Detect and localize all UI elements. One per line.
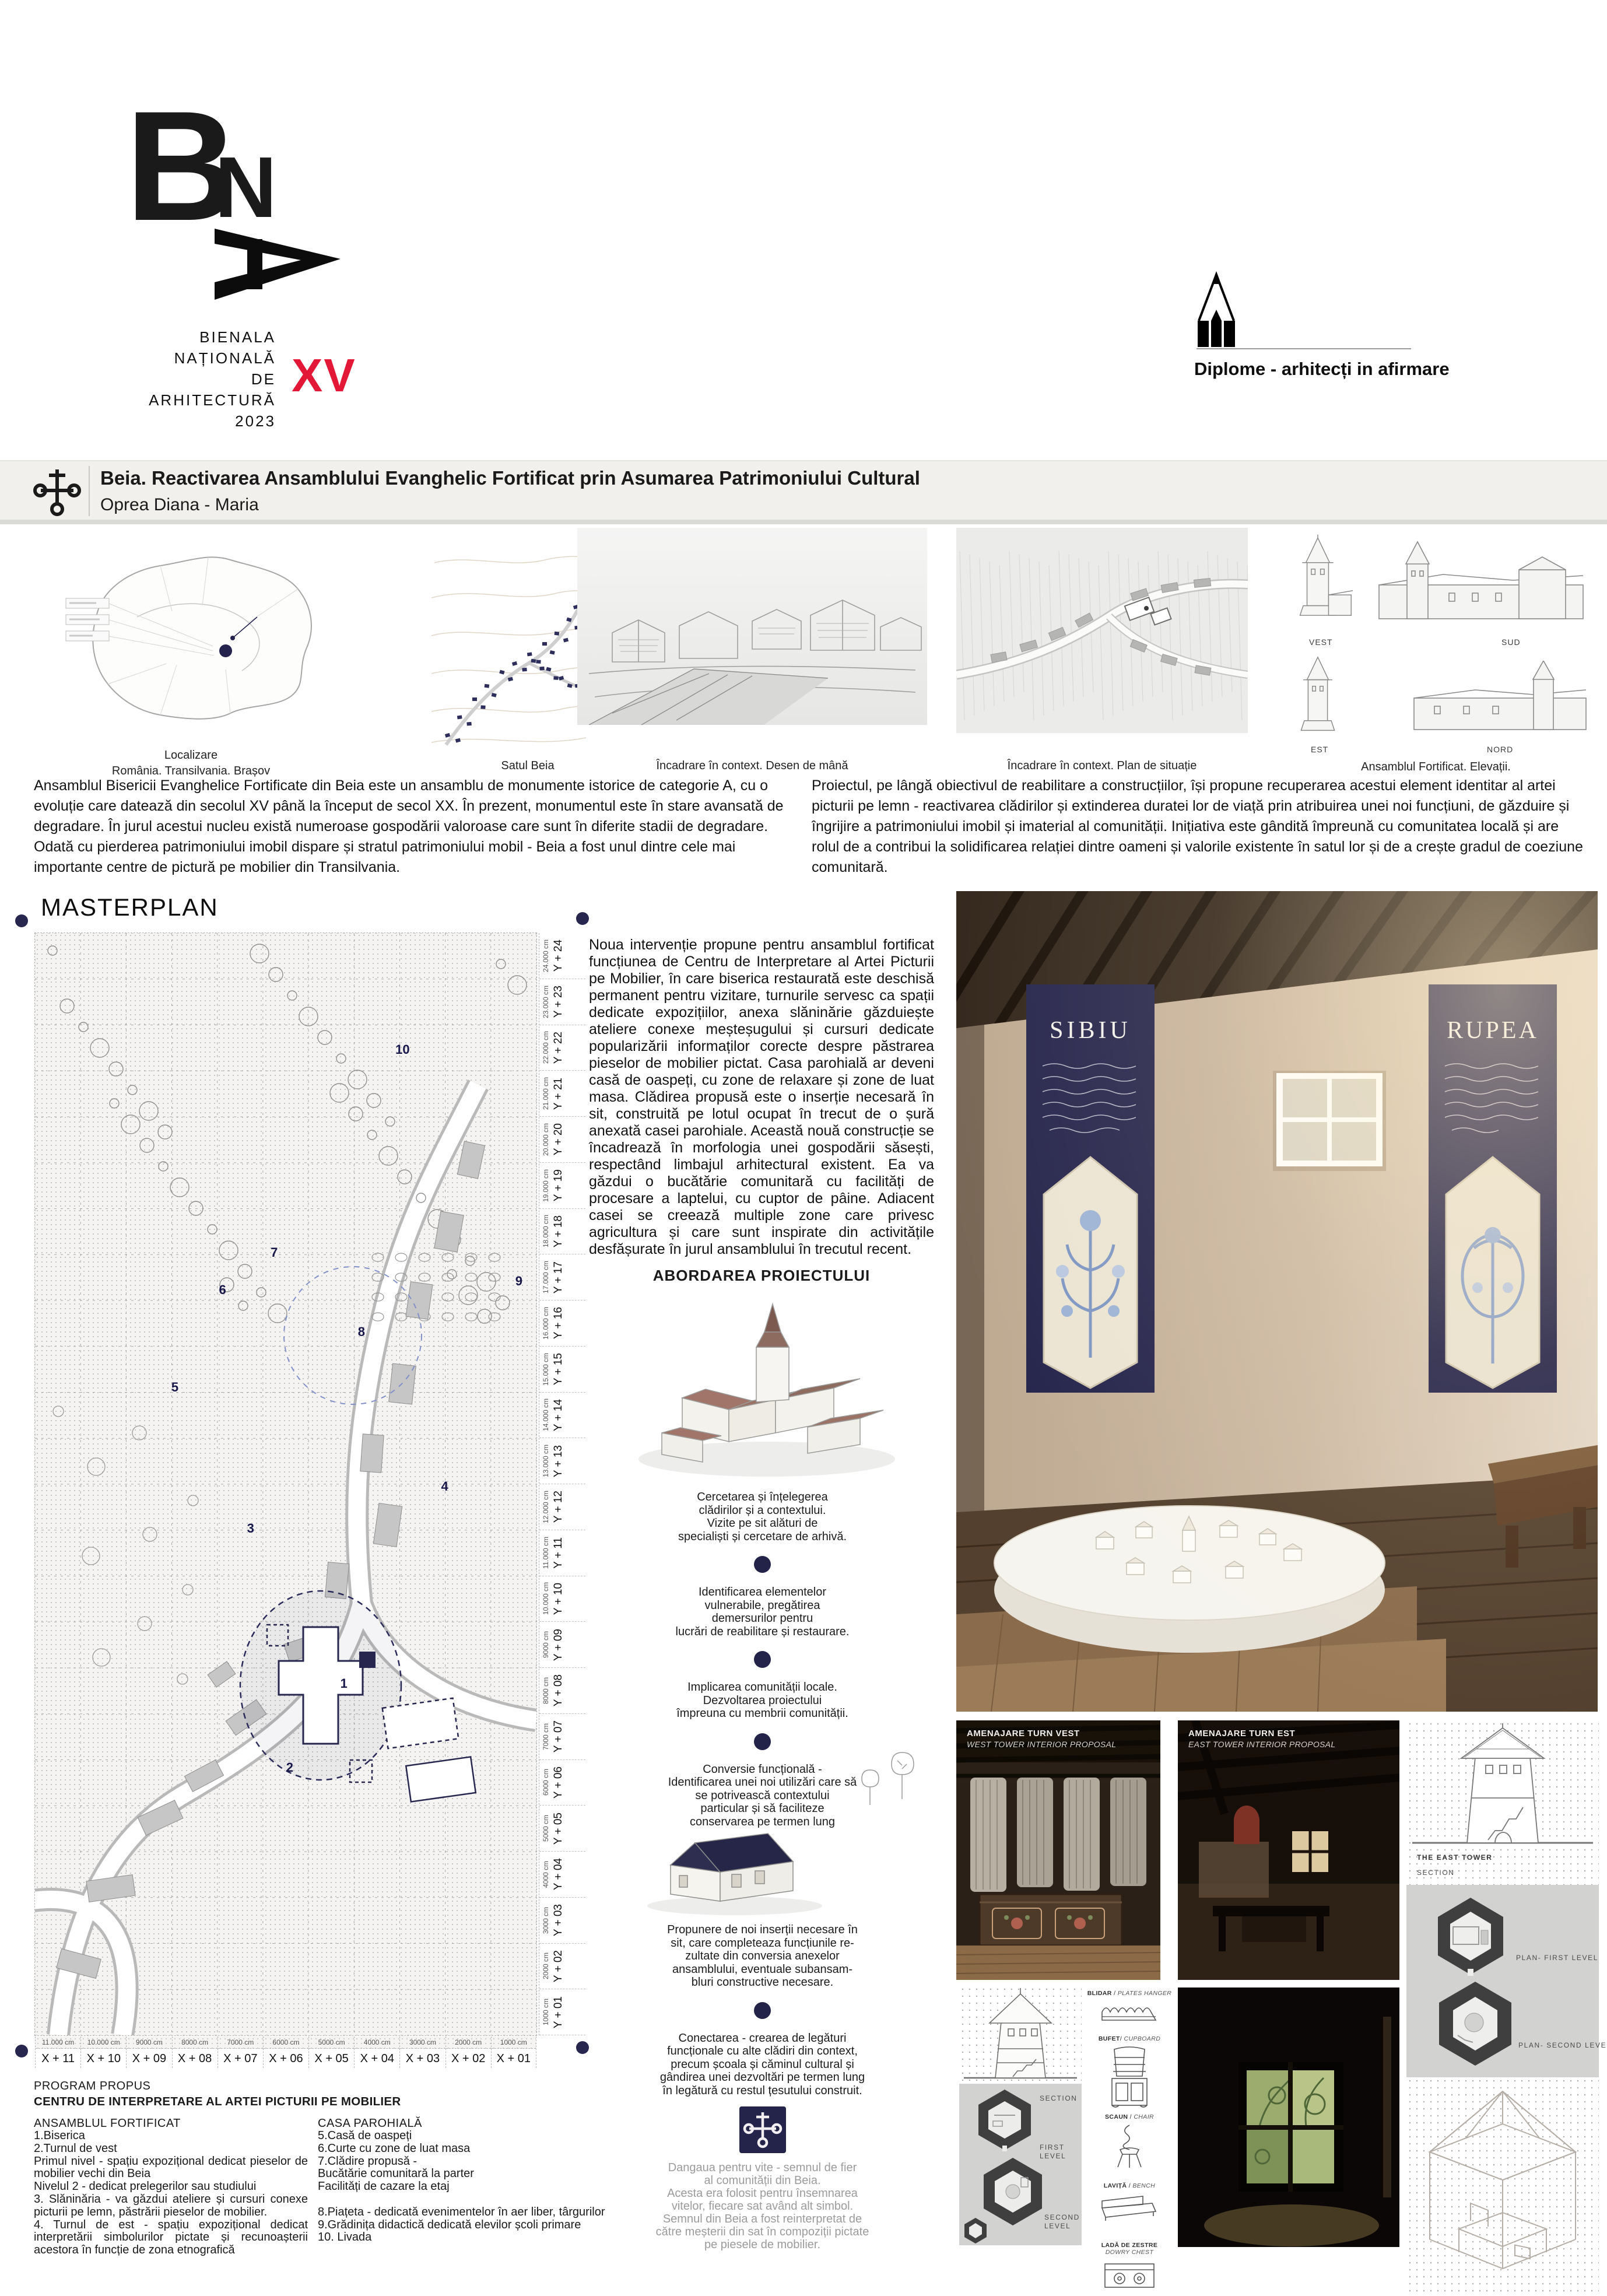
program-column-fortificat: ANSAMBLUL FORTIFICAT 1.Biserica2.Turnul … (34, 2117, 308, 2257)
masterplan-drawing: 12345678910 (35, 933, 536, 2035)
elevation-label-sud: SUD (1501, 637, 1521, 647)
east-plan2-label: PLAN- SECOND LEVEL (1518, 2041, 1607, 2049)
y-grid-cell: 8000 cmY + 08 (539, 1668, 585, 1714)
process-dot-icon (754, 1651, 771, 1668)
program-item: Nivelul 2 - dedicat prelegerilor sau stu… (34, 2181, 308, 2193)
approach-heading: ABORDAREA PROIECTULUI (589, 1267, 934, 1285)
x-grid-cell: 7000 cmX + 07 (217, 2036, 263, 2068)
program-item: 1.Biserica (34, 2130, 308, 2143)
elevation-nord-drawing (1411, 661, 1589, 742)
pencil-icon (1194, 265, 1238, 347)
y-grid-cell: 16.000 cmY + 16 (539, 1301, 585, 1347)
x-grid-cell: 9000 cmX + 09 (126, 2036, 171, 2068)
plan-marker-4: 4 (441, 1479, 448, 1494)
plan-marker-10: 10 (395, 1042, 409, 1057)
photo-label-vest: AMENAJARE TURN VEST WEST TOWER INTERIOR … (967, 1729, 1116, 1750)
process-dot-icon (754, 2002, 771, 2019)
elevation-label-vest: VEST (1309, 637, 1333, 647)
page-author: Oprea Diana - Maria (100, 495, 259, 515)
furniture-column: BLIDAR / PLATES HANGER BUFET/ CUPBOARD S… (1086, 1990, 1173, 2281)
east-plan1-label: PLAN- FIRST LEVEL (1516, 1954, 1598, 1962)
map-caption-elevatii: Ansamblul Fortificat. Elevații. (1277, 759, 1595, 775)
axonometric-proposed-house (638, 1801, 831, 1918)
plan-marker-3: 3 (247, 1521, 254, 1536)
photo-turn-vest: AMENAJARE TURN VEST WEST TOWER INTERIOR … (956, 1720, 1160, 1980)
west-first-level-label: FIRST LEVEL (1040, 2143, 1077, 2161)
intro-paragraph-right: Proiectul, pe lângă obiectivul de reabil… (812, 776, 1587, 878)
intro-paragraph-left: Ansamblul Bisericii Evanghelice Fortific… (34, 776, 786, 878)
plan-marker-9: 9 (515, 1274, 522, 1289)
y-grid-cell: 1000 cmY + 01 (539, 1989, 585, 2035)
program-col1-title: ANSAMBLUL FORTIFICAT (34, 2117, 308, 2130)
process-steps-5-6: Propunere de noi inserții necesare în si… (603, 1923, 921, 2097)
program-item: Facilități de cazare la etaj (318, 2181, 612, 2193)
y-grid-cell: 24.000 cmY + 24 (539, 933, 585, 979)
program-item: 6.Curte cu zone de luat masa (318, 2143, 612, 2155)
grid-dot-icon (576, 2041, 589, 2054)
map-localizare (55, 530, 327, 737)
program-item: 5.Casă de oaspeți (318, 2130, 612, 2143)
page-title: Beia. Reactivarea Ansamblului Evanghelic… (100, 467, 920, 489)
grid-dot-icon (576, 912, 589, 925)
y-grid-cell: 13.000 cmY + 13 (539, 1438, 585, 1484)
y-grid-cell: 15.000 cmY + 15 (539, 1347, 585, 1393)
title-bar: Beia. Reactivarea Ansamblului Evanghelic… (0, 460, 1607, 524)
west-tower-section-panel (959, 1986, 1082, 2084)
y-grid-cell: 20.000 cmY + 20 (539, 1117, 585, 1163)
y-grid-cell: 18.000 cmY + 18 (539, 1209, 585, 1255)
x-grid-cell: 11.000 cmX + 11 (35, 2036, 80, 2068)
y-grid-cell: 19.000 cmY + 19 (539, 1163, 585, 1209)
process-step-6: Conectarea - crearea de legături funcțio… (660, 2032, 865, 2098)
logo-text-line: ARHITECTURĂ (114, 390, 276, 411)
east-tower-name: THE EAST TOWER (1417, 1853, 1493, 1862)
y-grid-cell: 4000 cmY + 04 (539, 1852, 585, 1898)
program-item: 7.Clădire propusă - (318, 2155, 612, 2168)
process-step-2: Identificarea elementelor vulnerabile, p… (676, 1586, 850, 1638)
y-grid-cell: 3000 cmY + 03 (539, 1898, 585, 1944)
award-label: Diplome - arhitecți in afirmare (1194, 359, 1450, 380)
logo-text-line: NAȚIONALĂ (114, 348, 276, 369)
masterplan-x-axis: 11.000 cmX + 1110.000 cmX + 109000 cmX +… (35, 2036, 536, 2068)
map-caption-situatie: Încadrare în context. Plan de situație (956, 758, 1248, 774)
program-item (318, 2193, 612, 2206)
cattle-brand-badge (739, 2106, 786, 2153)
plan-marker-6: 6 (219, 1282, 226, 1298)
bufet-drawing (1106, 2045, 1153, 2110)
y-grid-cell: 5000 cmY + 05 (539, 1806, 585, 1852)
lavita-drawing (1097, 2192, 1162, 2222)
plan-marker-7: 7 (271, 1245, 278, 1260)
west-second-level-label: SECOND LEVEL (1044, 2213, 1082, 2231)
y-grid-cell: 21.000 cmY + 21 (539, 1071, 585, 1117)
logo-edition: XV (292, 349, 356, 402)
logo-letter-a-icon (213, 226, 345, 302)
scaun-drawing (1112, 2123, 1147, 2169)
x-grid-cell: 3000 cmX + 03 (399, 2036, 445, 2068)
program-item: 2.Turnul de vest (34, 2143, 308, 2155)
program-item: 4. Turnul de est - spațiu expozițional d… (34, 2219, 308, 2257)
program-item: 3. Slăninăria - va găzdui ateliere și cu… (34, 2193, 308, 2219)
brand-caption: Dangaua pentru vite - semnul de fier al … (603, 2161, 921, 2251)
east-tower-column: THE EAST TOWER SECTION PLAN- FIRST LEVEL… (1406, 1720, 1599, 2295)
masterplan-markers: 12345678910 (35, 933, 536, 2035)
program-heading: CENTRU DE INTERPRETARE AL ARTEI PICTURII… (34, 2095, 401, 2109)
x-grid-cell: 2000 cmX + 02 (445, 2036, 491, 2068)
y-grid-cell: 12.000 cmY + 12 (539, 1484, 585, 1530)
y-grid-cell: 11.000 cmY + 11 (539, 1530, 585, 1576)
elevation-label-nord: NORD (1487, 745, 1513, 754)
y-grid-cell: 9000 cmY + 09 (539, 1622, 585, 1668)
y-grid-cell: 7000 cmY + 07 (539, 1714, 585, 1760)
masterplan-description: Noua intervenție propune pentru ansamblu… (589, 937, 934, 1258)
east-tower-section-drawing (1406, 1723, 1599, 1849)
west-section-label: SECTION (1040, 2094, 1078, 2102)
process-dot-icon (754, 1733, 771, 1750)
program-item: Bucătărie comunitară la parter (318, 2168, 612, 2181)
program-label: PROGRAM PROPUS (34, 2080, 150, 2093)
x-grid-cell: 5000 cmX + 05 (308, 2036, 354, 2068)
x-grid-cell: 1000 cmX + 01 (491, 2036, 536, 2068)
y-grid-cell: 14.000 cmY + 14 (539, 1393, 585, 1439)
logo-text-line: 2023 (114, 411, 276, 432)
elevation-sud-drawing (1373, 539, 1589, 632)
plan-marker-1: 1 (341, 1676, 348, 1691)
logo-text-line: BIENALA (114, 327, 276, 348)
plan-marker-8: 8 (358, 1324, 365, 1340)
photo-label-est: AMENAJARE TURN EST EAST TOWER INTERIOR P… (1188, 1729, 1335, 1750)
masterplan-y-axis: 24.000 cmY + 2423.000 cmY + 2322.000 cmY… (539, 933, 585, 2035)
map-caption-localizare: Localizare România. Transilvania. Brașov (55, 748, 327, 779)
process-step-3: Implicarea comunității locale. Dezvoltar… (676, 1681, 848, 1720)
plan-marker-5: 5 (171, 1380, 178, 1395)
lada-drawing (1100, 2258, 1159, 2293)
title-divider (89, 466, 90, 516)
trees-doodle-icon (847, 1735, 922, 1811)
program-item: 8.Piațeta - dedicată evenimentelor în ae… (318, 2206, 612, 2219)
logo-text-line: DE (114, 369, 276, 390)
process-dot-icon (754, 1556, 771, 1573)
y-grid-cell: 10.000 cmY + 10 (539, 1576, 585, 1622)
award-divider (1197, 348, 1411, 349)
photo-turn-est: AMENAJARE TURN EST EAST TOWER INTERIOR P… (1178, 1720, 1399, 1980)
award-block: Diplome - arhitecți in afirmare (1194, 265, 1567, 347)
y-grid-cell: 6000 cmY + 06 (539, 1760, 585, 1806)
program-col2-title: CASA PAROHIALĂ (318, 2117, 612, 2130)
y-grid-cell: 2000 cmY + 02 (539, 1944, 585, 1990)
map-caption-desen: Încadrare în context. Desen de mână (577, 758, 927, 774)
logo-letter-n: N (215, 145, 277, 231)
grid-dot-icon (15, 914, 28, 927)
process-step-1: Cercetarea și înțelegerea clădirilor și … (678, 1491, 847, 1543)
elevation-vest-drawing (1283, 531, 1353, 633)
blidar-drawing (1097, 1999, 1162, 2024)
program-item: 9.Grădinița didactică dedicată elevilor … (318, 2219, 612, 2232)
west-tower-plans-panel: SECTION FIRST LEVEL SECOND LEVEL (959, 2084, 1082, 2245)
program-item: 10. Livada (318, 2231, 612, 2244)
map-plan-situatie (956, 528, 1248, 733)
plan-marker-2: 2 (286, 1760, 293, 1775)
map-elevatii: VEST SUD EST NORD (1277, 528, 1595, 761)
elevation-label-est: EST (1311, 745, 1328, 754)
x-grid-cell: 4000 cmX + 04 (354, 2036, 399, 2068)
program-item: Primul nivel - spațiu expozițional dedic… (34, 2155, 308, 2181)
photo-window-tree (1178, 1987, 1399, 2247)
masterplan-title: MASTERPLAN (41, 893, 219, 921)
axonometric-existing-ensemble (627, 1296, 907, 1482)
x-grid-cell: 8000 cmX + 08 (172, 2036, 217, 2068)
elevation-est-drawing (1283, 651, 1353, 745)
y-grid-cell: 22.000 cmY + 22 (539, 1025, 585, 1071)
grid-dot-icon (15, 2045, 28, 2057)
logo-text: BIENALANAȚIONALĂDEARHITECTURĂ2023 (114, 327, 276, 432)
interior-render: SIBIU RUPEA (956, 891, 1598, 1712)
map-desen (577, 528, 927, 725)
cattle-brand-icon (33, 466, 82, 518)
program-column-parohiala: CASA PAROHIALĂ 5.Casă de oaspeți6.Curte … (318, 2117, 612, 2244)
y-grid-cell: 23.000 cmY + 23 (539, 979, 585, 1025)
x-grid-cell: 6000 cmX + 06 (263, 2036, 308, 2068)
x-grid-cell: 10.000 cmX + 10 (80, 2036, 126, 2068)
process-step-5: Propunere de noi inserții necesare în si… (667, 1923, 858, 1989)
east-tower-axonometric (1406, 2083, 1599, 2293)
y-grid-cell: 17.000 cmY + 17 (539, 1254, 585, 1301)
east-section-label: SECTION (1417, 1869, 1455, 1877)
